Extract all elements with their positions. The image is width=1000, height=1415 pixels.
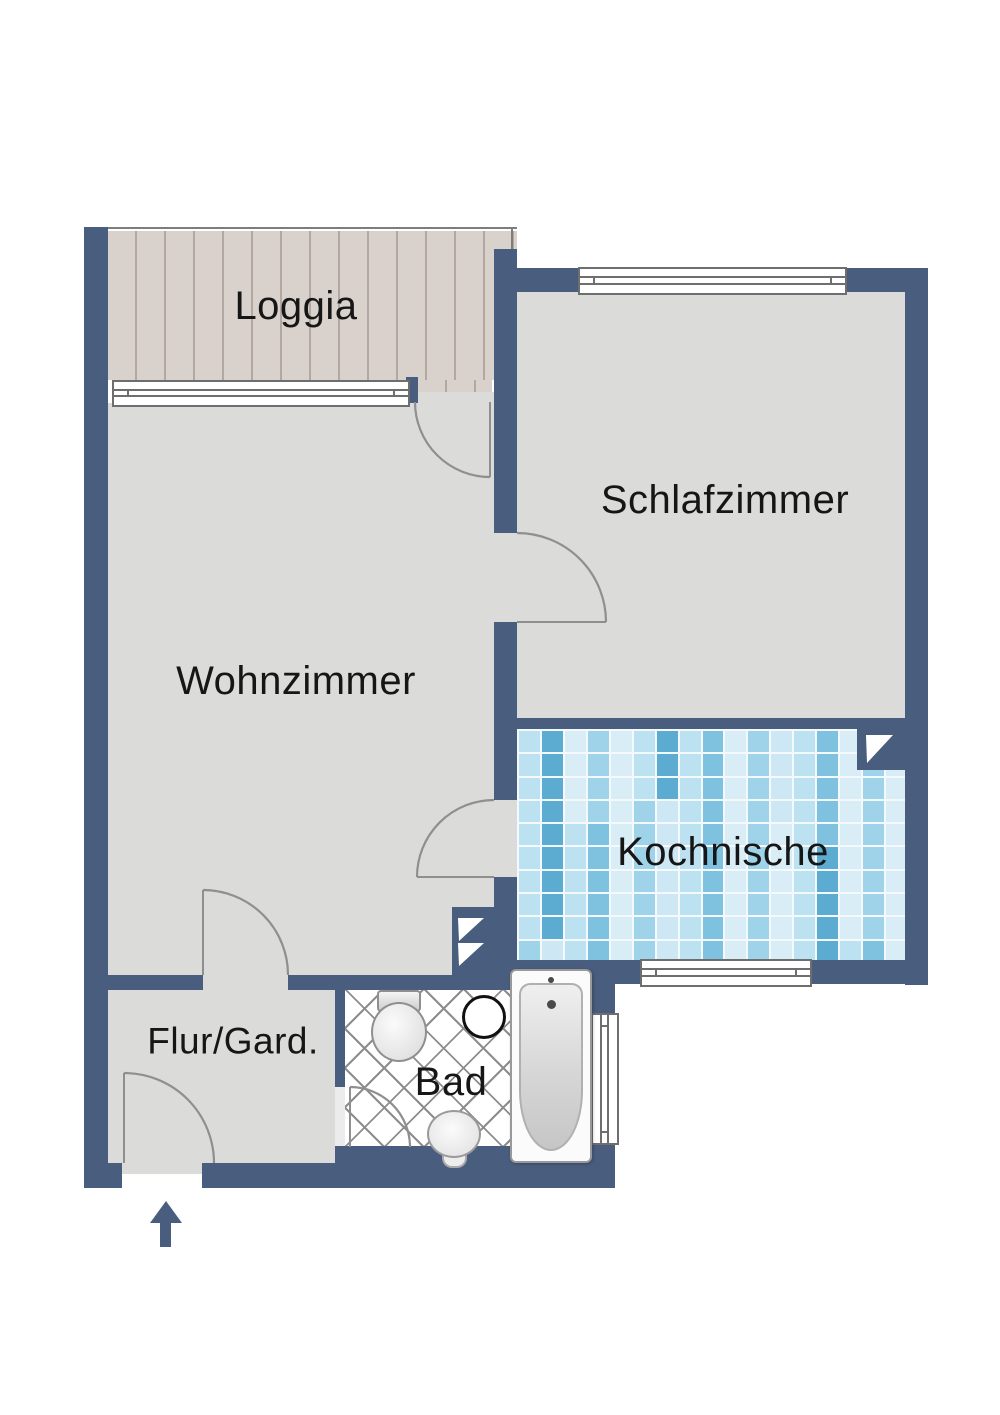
mosaic-tile (794, 731, 815, 752)
mosaic-tile (863, 824, 884, 845)
mosaic-tile (542, 801, 563, 822)
mosaic-tile (680, 778, 701, 799)
mosaic-tile (542, 894, 563, 915)
mosaic-tile (725, 917, 746, 938)
mosaic-tile (519, 754, 540, 775)
mosaic-tile (611, 731, 632, 752)
wall-bottom-mid (202, 1163, 345, 1188)
wall-wohn-schlaf-lower (494, 622, 517, 732)
window-kochnische (640, 959, 812, 987)
mosaic-tile (703, 731, 724, 752)
wall-schlafzimmer-corner (494, 249, 517, 292)
mosaic-tile (565, 847, 586, 868)
wall-flur-bad-lower (335, 1147, 345, 1163)
mosaic-tile (886, 941, 907, 962)
wall-flur-bad-upper (335, 990, 345, 1087)
mosaic-tile (840, 801, 861, 822)
mosaic-tile (519, 778, 540, 799)
window-bad (591, 1013, 619, 1145)
mosaic-tile (565, 917, 586, 938)
mosaic-tile (657, 894, 678, 915)
wall-wohn-flur-left (108, 975, 203, 990)
mosaic-tile (817, 917, 838, 938)
room-label-schlafzimmer: Schlafzimmer (601, 480, 849, 520)
mosaic-tile (519, 824, 540, 845)
mosaic-tile (703, 917, 724, 938)
entrance-arrow-icon (150, 1201, 182, 1247)
mosaic-tile (748, 778, 769, 799)
window-loggia (112, 380, 410, 407)
mosaic-tile (725, 778, 746, 799)
wall-right-outer (905, 268, 928, 985)
mosaic-tile (565, 801, 586, 822)
room-label-flur: Flur/Gard. (147, 1023, 319, 1060)
mosaic-tile (794, 894, 815, 915)
mosaic-tile (519, 847, 540, 868)
loggia-floor-doorway (418, 380, 492, 392)
mosaic-tile (863, 778, 884, 799)
mosaic-tile (542, 917, 563, 938)
mosaic-tile (611, 941, 632, 962)
flur-floor (108, 990, 335, 1163)
room-label-kochnische: Kochnische (617, 832, 829, 872)
mosaic-tile (771, 917, 792, 938)
wall-bottom-left (84, 1163, 122, 1188)
mosaic-tile (519, 871, 540, 892)
mosaic-tile (817, 894, 838, 915)
mosaic-tile (817, 778, 838, 799)
mosaic-tile (634, 754, 655, 775)
mosaic-tile (565, 824, 586, 845)
mosaic-tile (588, 894, 609, 915)
room-label-bad: Bad (415, 1062, 488, 1102)
mosaic-tile (703, 754, 724, 775)
mosaic-tile (840, 871, 861, 892)
mosaic-tile (565, 894, 586, 915)
entrance-opening (122, 1163, 202, 1174)
mosaic-tile (794, 801, 815, 822)
mosaic-tile (519, 731, 540, 752)
mosaic-tile (588, 941, 609, 962)
mosaic-tile (680, 754, 701, 775)
bathtub-faucet-dot (547, 1000, 556, 1009)
mosaic-tile (886, 871, 907, 892)
mosaic-tile (680, 894, 701, 915)
mosaic-tile (886, 917, 907, 938)
mosaic-tile (680, 917, 701, 938)
mosaic-tile (588, 871, 609, 892)
mosaic-tile (588, 778, 609, 799)
mosaic-tile (863, 801, 884, 822)
mosaic-tile (519, 941, 540, 962)
mosaic-tile (886, 847, 907, 868)
mosaic-tile (611, 917, 632, 938)
wall-wohn-schlaf-upper (494, 292, 517, 533)
bad-door-opening (335, 1087, 345, 1147)
mosaic-tile (863, 871, 884, 892)
mosaic-tile (542, 847, 563, 868)
mosaic-tile (588, 917, 609, 938)
mosaic-tile (611, 754, 632, 775)
mosaic-tile (748, 801, 769, 822)
mosaic-tile (771, 731, 792, 752)
mosaic-tile (565, 754, 586, 775)
mosaic-tile (886, 778, 907, 799)
mosaic-tile (565, 731, 586, 752)
mosaic-tile (725, 754, 746, 775)
mosaic-tile (519, 801, 540, 822)
mosaic-tile (588, 754, 609, 775)
mosaic-tile (634, 778, 655, 799)
mosaic-tile (703, 778, 724, 799)
mosaic-tile (748, 894, 769, 915)
floor-plan: Loggia Schlafzimmer Wohnzimmer Kochnisch… (0, 0, 1000, 1415)
mosaic-tile (886, 894, 907, 915)
wall-left-outer (84, 227, 108, 1188)
mosaic-tile (611, 894, 632, 915)
bathtub-icon (510, 969, 592, 1163)
mosaic-tile (748, 754, 769, 775)
mosaic-tile (657, 917, 678, 938)
mosaic-tile (680, 731, 701, 752)
mosaic-tile (794, 778, 815, 799)
mosaic-tile (817, 731, 838, 752)
loggia-outline-top (84, 227, 517, 229)
mosaic-tile (703, 801, 724, 822)
mosaic-tile (565, 778, 586, 799)
mosaic-tile (840, 824, 861, 845)
mosaic-tile (542, 754, 563, 775)
mosaic-tile (771, 801, 792, 822)
mosaic-tile (840, 847, 861, 868)
mosaic-tile (840, 917, 861, 938)
mosaic-tile (611, 778, 632, 799)
mosaic-tile (817, 801, 838, 822)
mosaic-tile (886, 824, 907, 845)
mosaic-tile (542, 778, 563, 799)
mosaic-tile (771, 778, 792, 799)
mosaic-tile (725, 894, 746, 915)
mosaic-tile (748, 731, 769, 752)
mosaic-tile (588, 801, 609, 822)
bathtub-drain-dot (548, 977, 554, 983)
mosaic-tile (725, 801, 746, 822)
mosaic-tile (634, 917, 655, 938)
wall-schlaf-koch-divider (517, 718, 905, 729)
mosaic-tile (634, 894, 655, 915)
mosaic-tile (863, 894, 884, 915)
mosaic-tile (565, 941, 586, 962)
mosaic-tile (588, 731, 609, 752)
mosaic-tile (542, 941, 563, 962)
wall-schlafzimmer-top-left (517, 268, 578, 292)
mosaic-tile (771, 754, 792, 775)
mosaic-tile (519, 894, 540, 915)
mosaic-tile (840, 894, 861, 915)
mosaic-tile (771, 894, 792, 915)
mosaic-tile (840, 778, 861, 799)
mosaic-tile (542, 731, 563, 752)
mosaic-tile (588, 847, 609, 868)
circle-fixture-icon (462, 995, 506, 1039)
mosaic-tile (863, 917, 884, 938)
mosaic-tile (519, 917, 540, 938)
shaft-block-kochnische (857, 722, 905, 770)
mosaic-tile (817, 754, 838, 775)
room-label-loggia: Loggia (234, 286, 357, 326)
toilet-icon (371, 1002, 427, 1062)
flur-door-opening (203, 975, 288, 990)
wall-schlafzimmer-top-right (843, 268, 928, 292)
mosaic-tile (725, 731, 746, 752)
mosaic-tile (817, 941, 838, 962)
mosaic-tile (794, 754, 815, 775)
mosaic-tile (542, 824, 563, 845)
sink-icon (427, 1110, 481, 1158)
window-schlafzimmer (578, 267, 847, 295)
mosaic-tile (657, 754, 678, 775)
mosaic-tile (657, 778, 678, 799)
mosaic-tile (588, 824, 609, 845)
mosaic-tile (634, 731, 655, 752)
wall-kochnische-left-upper (494, 732, 517, 800)
mosaic-tile (565, 871, 586, 892)
mosaic-tile (863, 847, 884, 868)
mosaic-tile (863, 941, 884, 962)
mosaic-tile (794, 917, 815, 938)
mosaic-tile (680, 801, 701, 822)
mosaic-tile (703, 894, 724, 915)
mosaic-tile (657, 801, 678, 822)
mosaic-tile (634, 801, 655, 822)
mosaic-tile (748, 917, 769, 938)
mosaic-tile (886, 801, 907, 822)
mosaic-tile (542, 871, 563, 892)
schlafzimmer-door-opening (494, 533, 517, 622)
mosaic-tile (611, 801, 632, 822)
mosaic-tile (657, 731, 678, 752)
room-label-wohnzimmer: Wohnzimmer (176, 661, 416, 701)
kochnische-door-opening (494, 800, 517, 877)
mosaic-tile (840, 941, 861, 962)
